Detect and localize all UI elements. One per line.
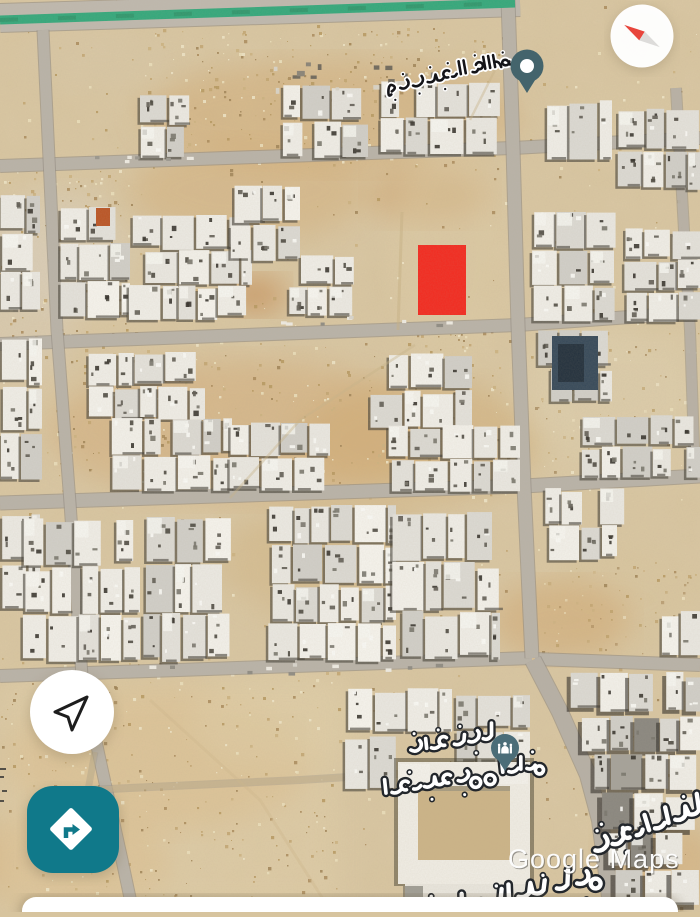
- svg-text:Google Maps: Google Maps: [508, 844, 680, 874]
